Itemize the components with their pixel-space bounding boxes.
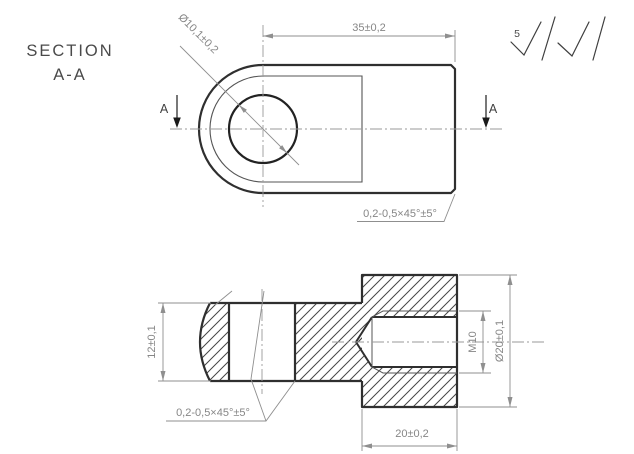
section-marker-left-arrow: [173, 118, 181, 129]
outer-dia-arrow-top: [508, 275, 513, 285]
dim-overall-length: 35±0,2: [352, 22, 386, 34]
dim-outer-diameter: Ø20±0,1: [494, 320, 506, 362]
engineering-drawing: SECTION A-A 5 35±0,2 Ø10,1±0,2 0,2-0,5×4…: [0, 0, 634, 454]
top-view: [170, 25, 502, 222]
thickness-dim-arrow-bottom: [161, 371, 166, 381]
cylinder-length-arrow-right: [447, 444, 457, 449]
note-chamfer-top: 0,2-0,5×45°±5°: [363, 208, 437, 220]
section-title-line1: SECTION: [26, 42, 113, 60]
length-dim-arrow-left: [263, 34, 273, 39]
section-letter-left: A: [160, 102, 169, 116]
cylinder-length-arrow-left: [362, 444, 372, 449]
outer-dia-arrow-bottom: [508, 397, 513, 407]
section-marker-right-arrow: [482, 118, 490, 129]
length-dim-arrow-right: [445, 34, 455, 39]
section-view-hatching: [200, 275, 457, 407]
dim-cylinder-length: 20±0,2: [395, 428, 429, 440]
thread-dim-arrow-top: [481, 311, 486, 321]
surface-roughness-symbols: [511, 17, 605, 60]
thread-dim-arrow-bottom: [481, 363, 486, 373]
dim-thickness: 12±0,1: [146, 325, 158, 359]
roughness-check2-icon: [558, 22, 589, 56]
open-paren-slash-icon: [542, 17, 555, 60]
section-title-line2: A-A: [53, 66, 87, 84]
dim-thread: M10: [467, 331, 479, 352]
dim-hole-diameter: Ø10,1±0,2: [176, 11, 221, 56]
chamfer-note-bottom-leader: [166, 291, 295, 421]
drawing-svg: SECTION A-A 5 35±0,2 Ø10,1±0,2 0,2-0,5×4…: [0, 0, 634, 454]
roughness-value: 5: [514, 28, 520, 40]
note-chamfer-bottom: 0,2-0,5×45°±5°: [176, 407, 250, 419]
section-letter-right: A: [489, 102, 498, 116]
thickness-dim-arrow-top: [161, 303, 166, 313]
close-paren-slash-icon: [593, 17, 605, 60]
